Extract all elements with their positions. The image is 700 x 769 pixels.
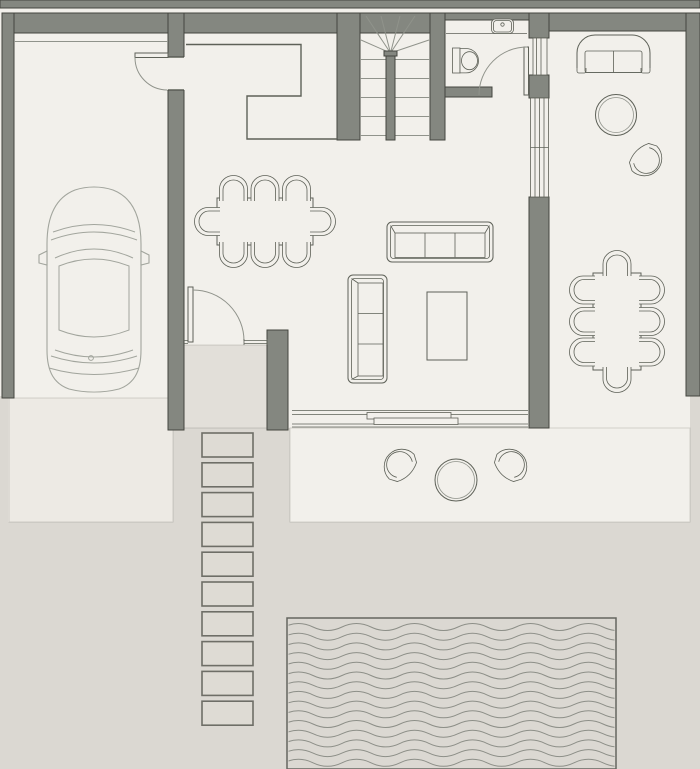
dining-chair [283,242,311,268]
dining-chair [639,308,665,336]
east-partition-wall-top [529,13,549,38]
front-door-leaf [188,287,193,342]
north-wall-west [2,13,445,33]
east-partition-wall-mid [529,75,549,98]
stepping-stone [202,463,253,487]
floor-plan-canvas: Architectural floor plan — ground floor … [0,0,700,769]
ground-patch-left [0,396,9,429]
driveway [8,398,173,522]
dining-table-terrace [593,273,641,370]
stepping-stone [202,612,253,636]
bathroom-south-wall [445,87,492,97]
dining-chair [639,338,665,366]
east-partition-wall-bottom [529,197,549,428]
loveseat [577,35,650,73]
dining-chair [283,176,311,202]
toilet-tank [453,48,461,73]
coffee-table [427,292,467,360]
stepping-stone [202,642,253,666]
west-outer-wall [2,13,14,398]
ground-patch-right [690,396,700,429]
dining-chair [603,367,631,393]
dining-chair [220,242,248,268]
dining-chair [639,276,665,304]
north-wall-east [533,13,700,31]
east-outer-wall [686,13,700,396]
dining-chair [310,208,336,236]
sliding-door-panel-2 [374,418,458,425]
dining-chair [251,242,279,268]
dining-table-indoor [217,198,313,245]
terrace [290,428,690,522]
stair-rail-cap [384,51,397,56]
car [39,187,149,392]
side-table-round [596,95,637,136]
stepping-stone [202,522,253,546]
bathroom-door-leaf [524,47,529,95]
dining-chair [603,251,631,277]
dining-chair [570,308,596,336]
garage-door-leaf [135,53,168,58]
dining-chair [195,208,221,236]
dining-chair [570,338,596,366]
sofa-horizontal [387,222,493,262]
stepping-stone [202,701,253,725]
stair-center-rail [386,55,395,140]
window-small [533,38,547,75]
garage-partition-wall-upper [168,13,184,57]
stepping-stone [202,433,253,457]
north-wall-bathroom [445,13,533,20]
stair-wall-left [337,13,360,140]
patio-table-round [435,459,477,501]
dining-chair [251,176,279,202]
car-body [47,187,141,392]
stepping-stone [202,493,253,517]
garage-door-opening [168,57,185,90]
site-boundary-wall [0,0,700,8]
sofa-vertical [348,275,387,383]
dining-chair [570,276,596,304]
dining-chair [220,176,248,202]
garage-partition-wall-lower [168,90,184,430]
stair-wall-right [430,13,445,140]
stepping-stone [202,552,253,576]
stepping-stone [202,582,253,606]
entry-pillar [267,330,288,430]
floor-plan-page: Architectural floor plan — ground floor … [0,0,700,769]
stepping-stone [202,671,253,695]
